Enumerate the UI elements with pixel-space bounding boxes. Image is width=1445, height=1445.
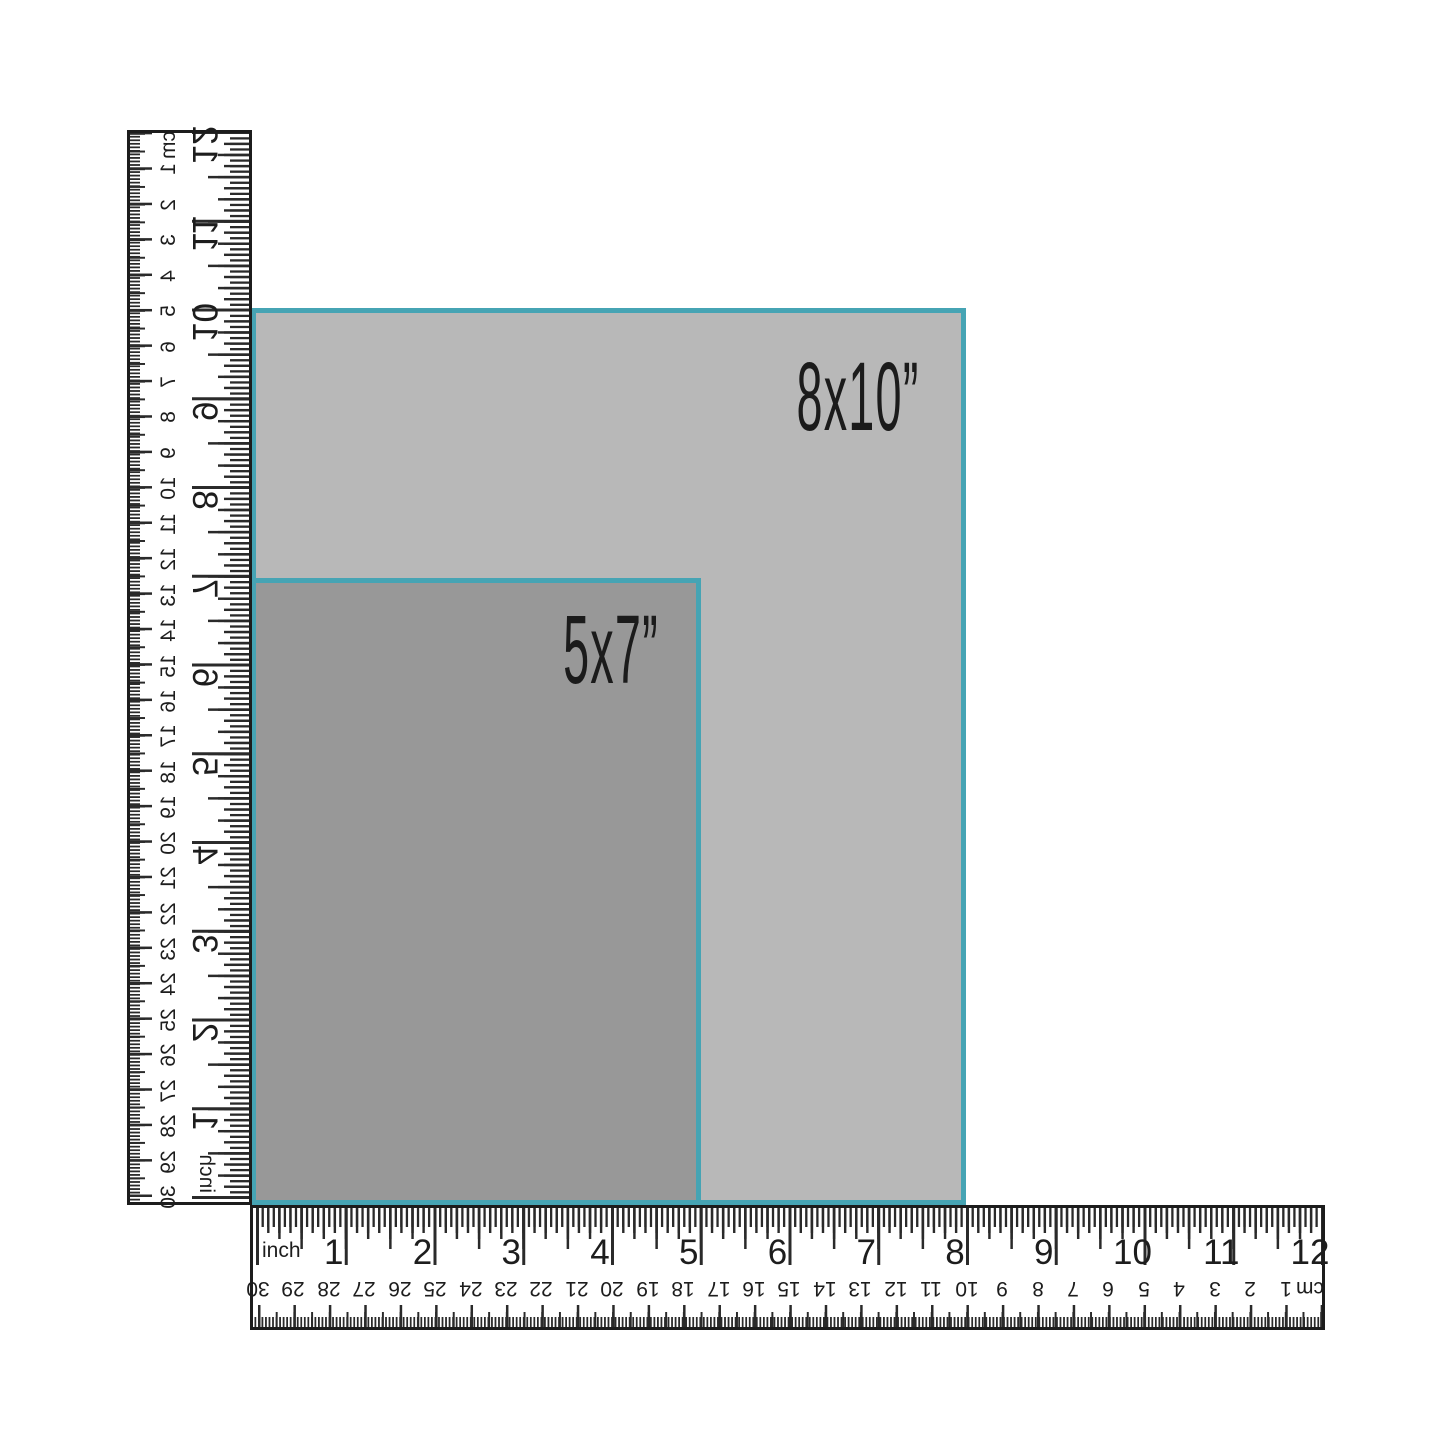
cm-number: 4 [1173, 1277, 1185, 1300]
inch-number: 11 [185, 216, 224, 252]
inch-number: 9 [185, 402, 224, 421]
cm-number: 17 [707, 1277, 730, 1300]
cm-number: 7 [1067, 1277, 1079, 1300]
cm-number: 4 [157, 270, 180, 282]
inch-unit-label: inch [262, 1239, 301, 1262]
cm-number: 18 [157, 760, 180, 783]
cm-number: 21 [157, 866, 180, 889]
cm-number: 6 [157, 341, 180, 353]
cm-number: 20 [601, 1277, 624, 1300]
cm-number: 14 [157, 618, 180, 641]
cm-number: 25 [157, 1008, 180, 1031]
cm-number: 19 [636, 1277, 659, 1300]
cm-number: 19 [157, 796, 180, 819]
cm-number: 16 [157, 689, 180, 712]
inch-number: 7 [185, 579, 224, 598]
cm-number: 2 [157, 199, 180, 211]
cm-number: 13 [157, 583, 180, 606]
inch-number: 4 [185, 845, 224, 864]
cm-number: 25 [423, 1277, 446, 1300]
ruler-body: inchcm1234567891011121234567891011121314… [127, 130, 252, 1205]
cm-number: 5 [157, 305, 180, 317]
cm-number: 7 [157, 376, 180, 388]
inch-unit-label: inch [195, 1154, 218, 1193]
cm-number: 22 [530, 1277, 553, 1300]
cm-number: 30 [157, 1185, 180, 1208]
cm-number: 6 [1103, 1277, 1115, 1300]
cm-number: 10 [955, 1277, 978, 1300]
cm-unit-label: cm [1296, 1277, 1324, 1300]
print-size-comparison-diagram: 8x10” 5x7” inchcm12345678910111212345678… [0, 0, 1445, 1445]
size-label-5x7: 5x7” [563, 593, 659, 707]
cm-number: 29 [157, 1150, 180, 1173]
inch-number: 1 [324, 1234, 343, 1273]
cm-number: 3 [157, 234, 180, 246]
cm-number: 5 [1138, 1277, 1150, 1300]
inch-number: 5 [679, 1234, 698, 1273]
cm-number: 1 [157, 164, 180, 176]
cm-number: 3 [1209, 1277, 1221, 1300]
inch-number: 9 [1034, 1234, 1053, 1273]
horizontal-ruler: inchcm1234567891011121234567891011121314… [250, 1205, 1325, 1330]
inch-number: 12 [185, 126, 224, 165]
cm-number: 18 [672, 1277, 695, 1300]
cm-number: 9 [996, 1277, 1008, 1300]
inch-number: 10 [1113, 1234, 1152, 1273]
size-rect-5x7: 5x7” [251, 578, 701, 1205]
cm-number: 1 [1280, 1277, 1292, 1300]
cm-number: 8 [157, 412, 180, 424]
cm-number: 16 [742, 1277, 765, 1300]
cm-number: 11 [157, 513, 180, 535]
cm-number: 24 [157, 973, 180, 996]
inch-number: 12 [1291, 1234, 1330, 1273]
cm-number: 8 [1032, 1277, 1044, 1300]
inch-number: 6 [185, 668, 224, 687]
cm-number: 11 [920, 1277, 942, 1300]
cm-number: 2 [1244, 1277, 1256, 1300]
cm-number: 12 [884, 1277, 907, 1300]
size-label-8x10: 8x10” [796, 340, 919, 454]
cm-number: 14 [813, 1277, 836, 1300]
cm-number: 30 [246, 1277, 269, 1300]
cm-number: 13 [849, 1277, 872, 1300]
cm-number: 12 [157, 548, 180, 571]
inch-number: 11 [1203, 1234, 1239, 1273]
cm-number: 23 [157, 937, 180, 960]
cm-number: 10 [157, 477, 180, 500]
inch-number: 3 [502, 1234, 521, 1273]
inch-number: 3 [185, 934, 224, 953]
inch-number: 2 [185, 1023, 224, 1042]
cm-number: 27 [353, 1277, 376, 1300]
vertical-ruler: inchcm1234567891011121234567891011121314… [127, 130, 252, 1205]
cm-number: 28 [317, 1277, 340, 1300]
cm-number: 9 [157, 447, 180, 459]
cm-number: 23 [494, 1277, 517, 1300]
cm-number: 24 [459, 1277, 482, 1300]
cm-number: 22 [157, 902, 180, 925]
inch-number: 8 [945, 1234, 964, 1273]
cm-number: 28 [157, 1114, 180, 1137]
cm-number: 27 [157, 1079, 180, 1102]
inch-number: 7 [857, 1234, 876, 1273]
cm-number: 15 [157, 654, 180, 677]
inch-number: 2 [413, 1234, 432, 1273]
cm-unit-label: cm [157, 131, 180, 159]
cm-number: 21 [565, 1277, 588, 1300]
cm-number: 26 [388, 1277, 411, 1300]
cm-number: 29 [282, 1277, 305, 1300]
cm-number: 20 [157, 831, 180, 854]
inch-number: 10 [185, 303, 224, 342]
ruler-body: inchcm1234567891011121234567891011121314… [250, 1205, 1325, 1330]
cm-number: 17 [157, 725, 180, 748]
inch-number: 5 [185, 757, 224, 776]
cm-number: 26 [157, 1044, 180, 1067]
inch-number: 6 [768, 1234, 787, 1273]
inch-number: 1 [185, 1112, 224, 1131]
cm-number: 15 [778, 1277, 801, 1300]
inch-number: 8 [185, 490, 224, 509]
inch-number: 4 [590, 1234, 609, 1273]
